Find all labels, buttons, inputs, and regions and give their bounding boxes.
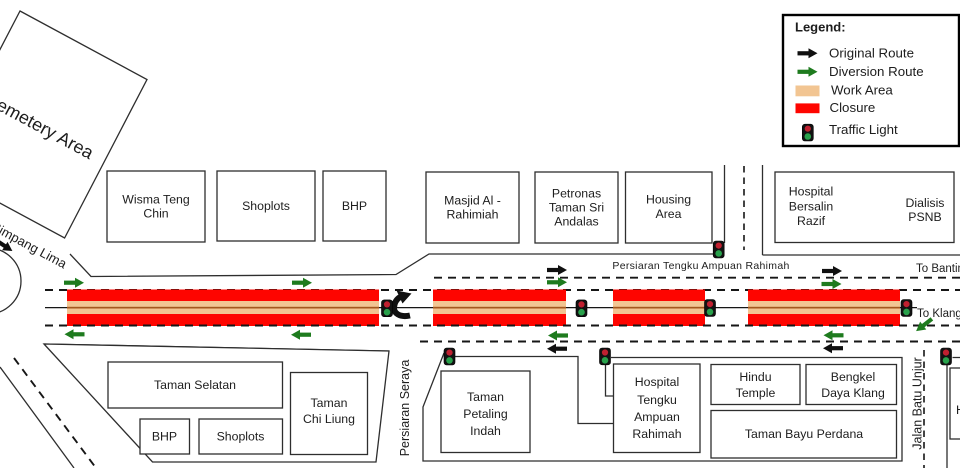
- svg-text:Housing: Housing: [646, 193, 691, 207]
- svg-text:Razif: Razif: [797, 214, 826, 228]
- svg-text:Jalan Batu Unjur: Jalan Batu Unjur: [911, 357, 925, 449]
- svg-text:Hospital: Hospital: [789, 185, 833, 199]
- svg-text:BHP: BHP: [342, 199, 367, 213]
- svg-text:Daya Klang: Daya Klang: [821, 386, 885, 400]
- svg-text:Shoplots: Shoplots: [242, 199, 290, 213]
- svg-text:Wisma Teng: Wisma Teng: [122, 193, 190, 207]
- svg-text:Temple: Temple: [736, 386, 776, 400]
- svg-text:Taman Sri: Taman Sri: [549, 201, 604, 215]
- svg-text:Taman Bayu Perdana: Taman Bayu Perdana: [745, 427, 863, 441]
- svg-text:Traffic Light: Traffic Light: [829, 122, 898, 137]
- svg-text:Closure: Closure: [830, 100, 876, 115]
- svg-text:Rahimiah: Rahimiah: [447, 208, 499, 222]
- svg-text:Indah: Indah: [470, 424, 501, 438]
- svg-text:Taman: Taman: [311, 396, 348, 410]
- svg-text:Ampuan: Ampuan: [634, 410, 680, 424]
- svg-text:Legend:: Legend:: [795, 20, 846, 35]
- svg-text:Chi Liung: Chi Liung: [303, 412, 355, 426]
- svg-text:Dialisis: Dialisis: [906, 196, 945, 210]
- svg-text:PSNB: PSNB: [908, 210, 942, 224]
- svg-text:Andalas: Andalas: [554, 215, 598, 229]
- svg-text:Work Area: Work Area: [831, 83, 893, 98]
- svg-text:Petronas: Petronas: [552, 187, 601, 201]
- svg-text:Bengkel: Bengkel: [831, 370, 875, 384]
- svg-text:Hospital: Hospital: [635, 375, 679, 389]
- svg-text:Persiaran Seraya: Persiaran Seraya: [398, 360, 412, 457]
- svg-text:Diversion Route: Diversion Route: [829, 64, 924, 79]
- svg-text:Masjid Al -: Masjid Al -: [444, 194, 501, 208]
- svg-text:Tengku: Tengku: [637, 393, 677, 407]
- svg-text:Original Route: Original Route: [829, 46, 914, 61]
- svg-text:Rahimah: Rahimah: [632, 427, 681, 441]
- svg-text:Shoplots: Shoplots: [217, 430, 265, 444]
- svg-text:To Klang: To Klang: [917, 308, 960, 320]
- svg-text:Petaling: Petaling: [463, 407, 508, 421]
- svg-text:Area: Area: [656, 207, 682, 221]
- svg-text:Taman Selatan: Taman Selatan: [154, 378, 236, 392]
- svg-text:Hindu: Hindu: [739, 370, 771, 384]
- svg-text:Taman: Taman: [467, 390, 504, 404]
- svg-text:BHP: BHP: [152, 430, 177, 444]
- svg-text:To Banting: To Banting: [916, 263, 960, 275]
- svg-text:H: H: [956, 403, 960, 417]
- svg-text:Bersalin: Bersalin: [789, 200, 834, 214]
- svg-text:Chin: Chin: [143, 207, 168, 221]
- svg-text:Persiaran Tengku Ampuan Rahima: Persiaran Tengku Ampuan Rahimah: [612, 260, 789, 272]
